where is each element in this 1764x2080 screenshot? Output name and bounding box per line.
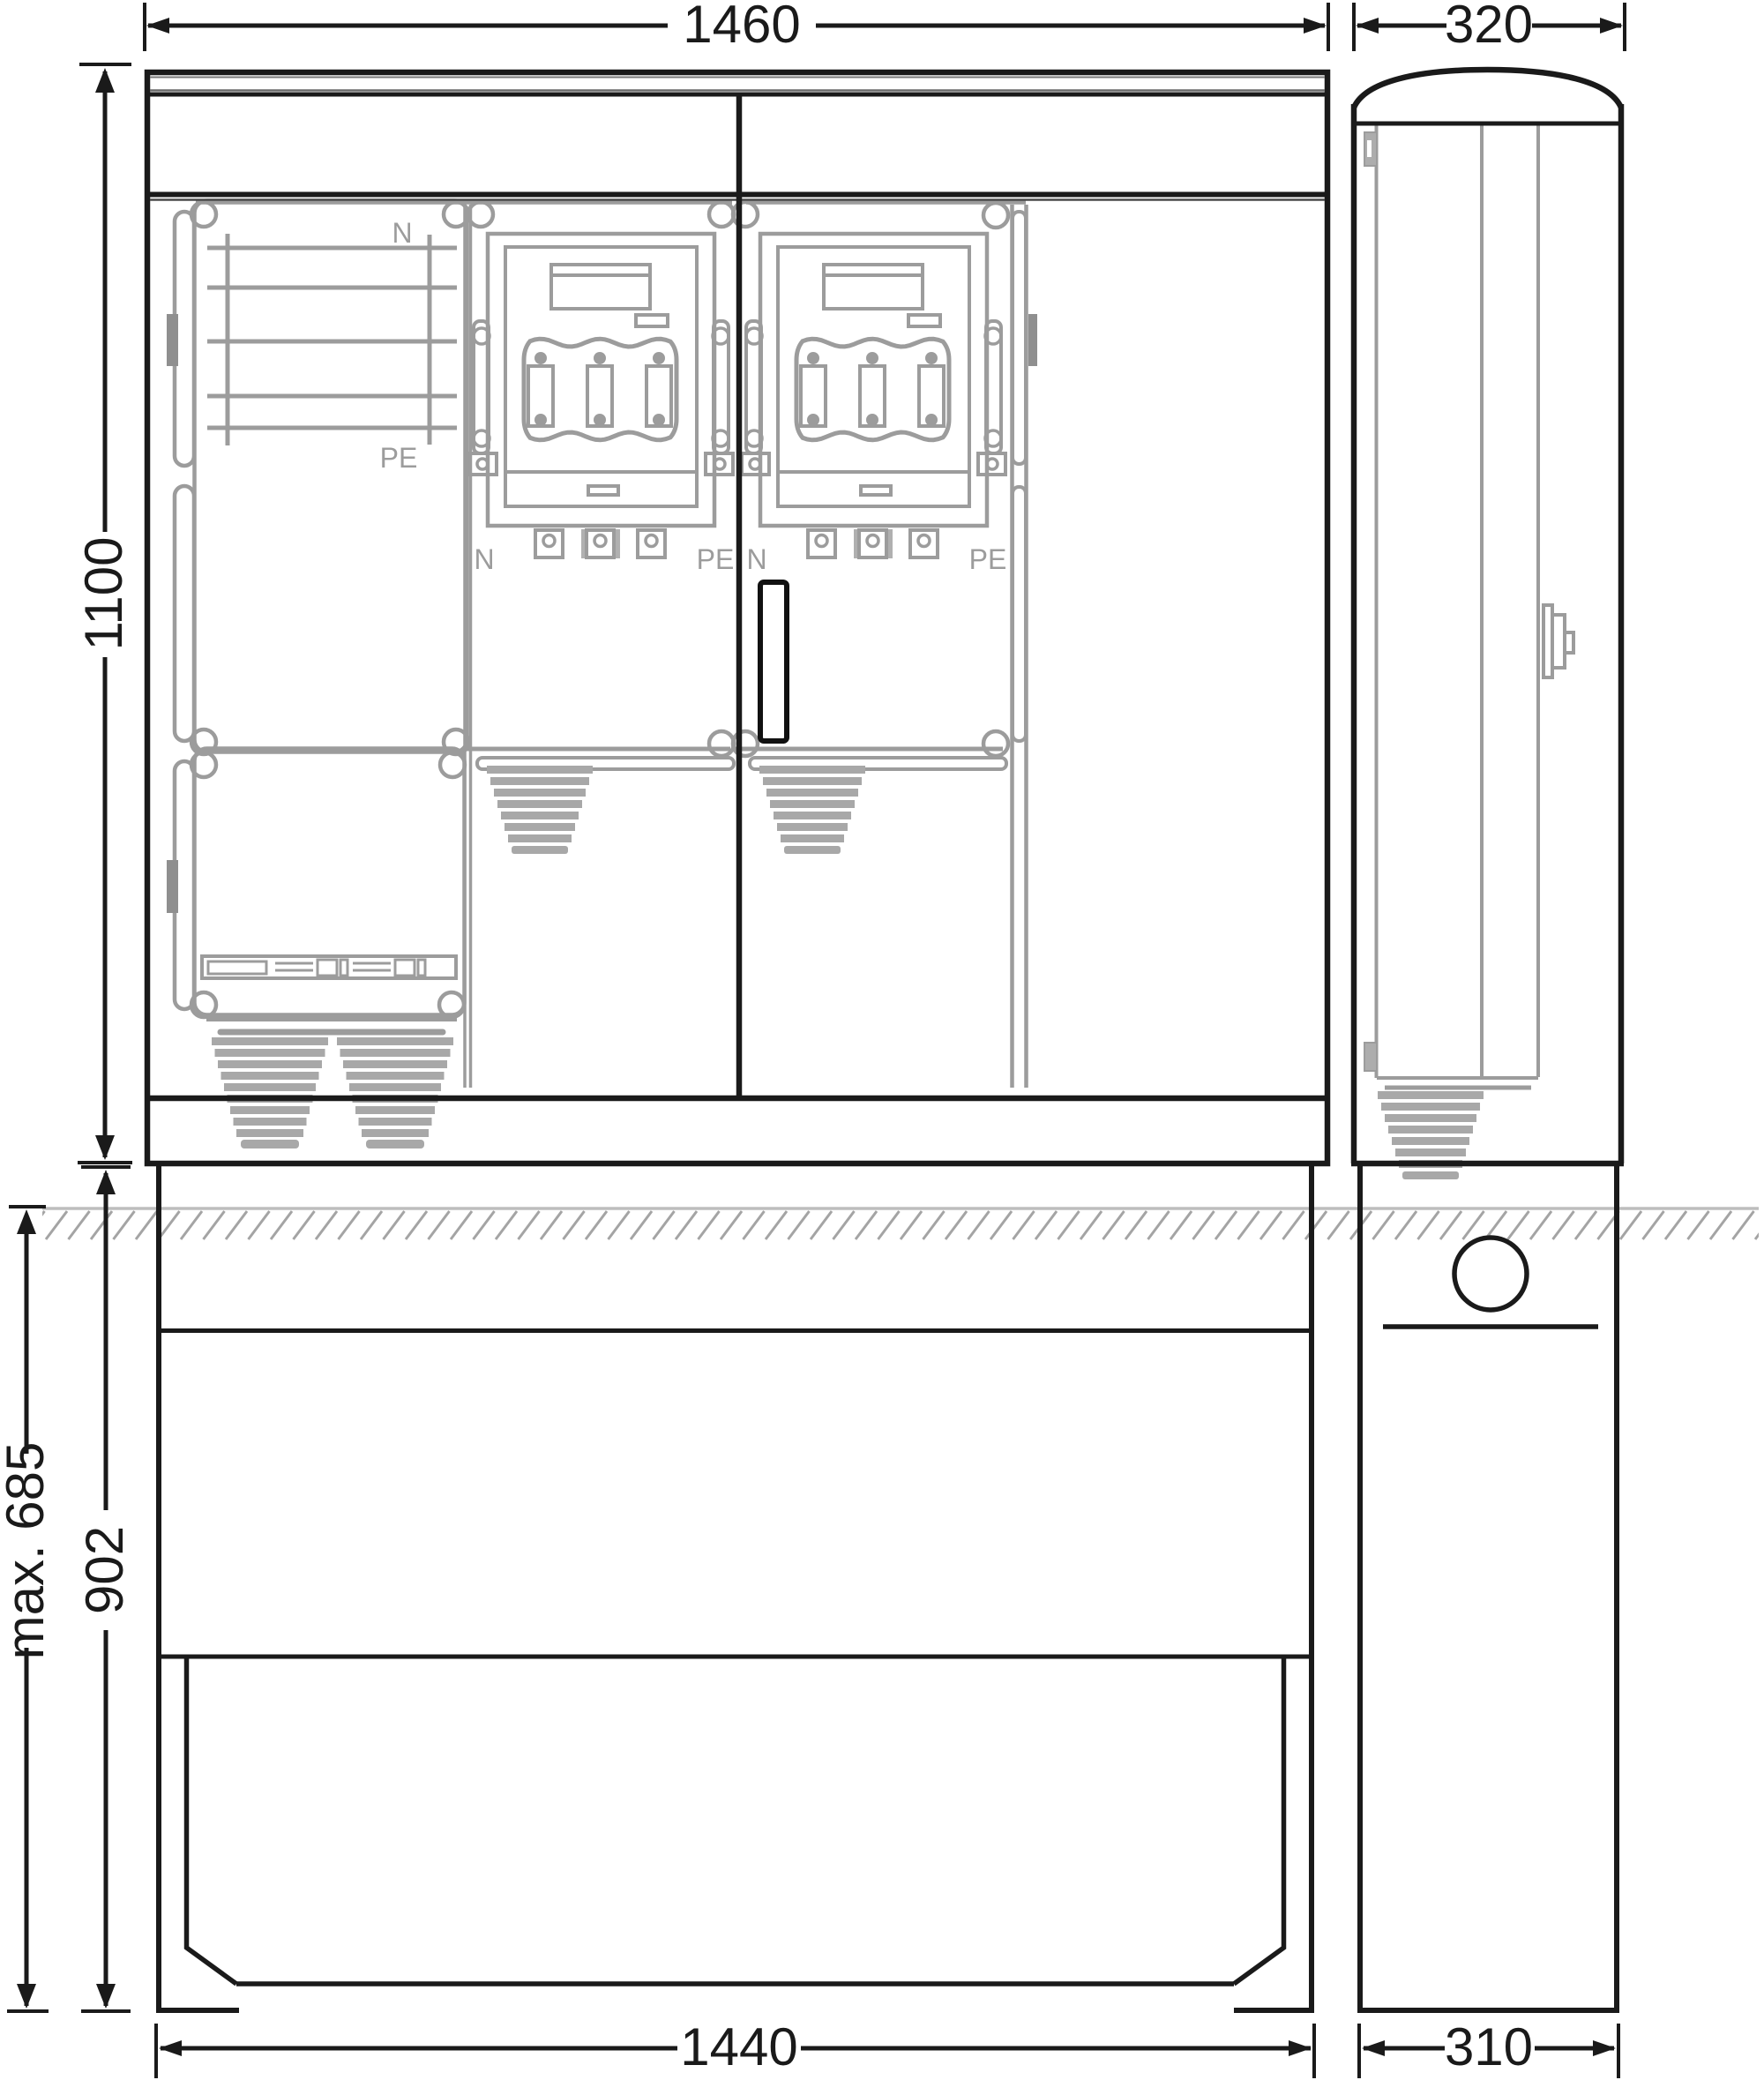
svg-text:320: 320 <box>1445 0 1533 54</box>
svg-text:1440: 1440 <box>680 2017 797 2076</box>
svg-text:902: 902 <box>75 1526 134 1614</box>
svg-text:1100: 1100 <box>74 536 133 650</box>
svg-text:1460: 1460 <box>683 0 800 54</box>
svg-text:max. 685: max. 685 <box>0 1442 55 1660</box>
svg-text:310: 310 <box>1445 2017 1533 2076</box>
svg-text:N: N <box>392 217 412 249</box>
svg-text:PE: PE <box>380 442 418 474</box>
